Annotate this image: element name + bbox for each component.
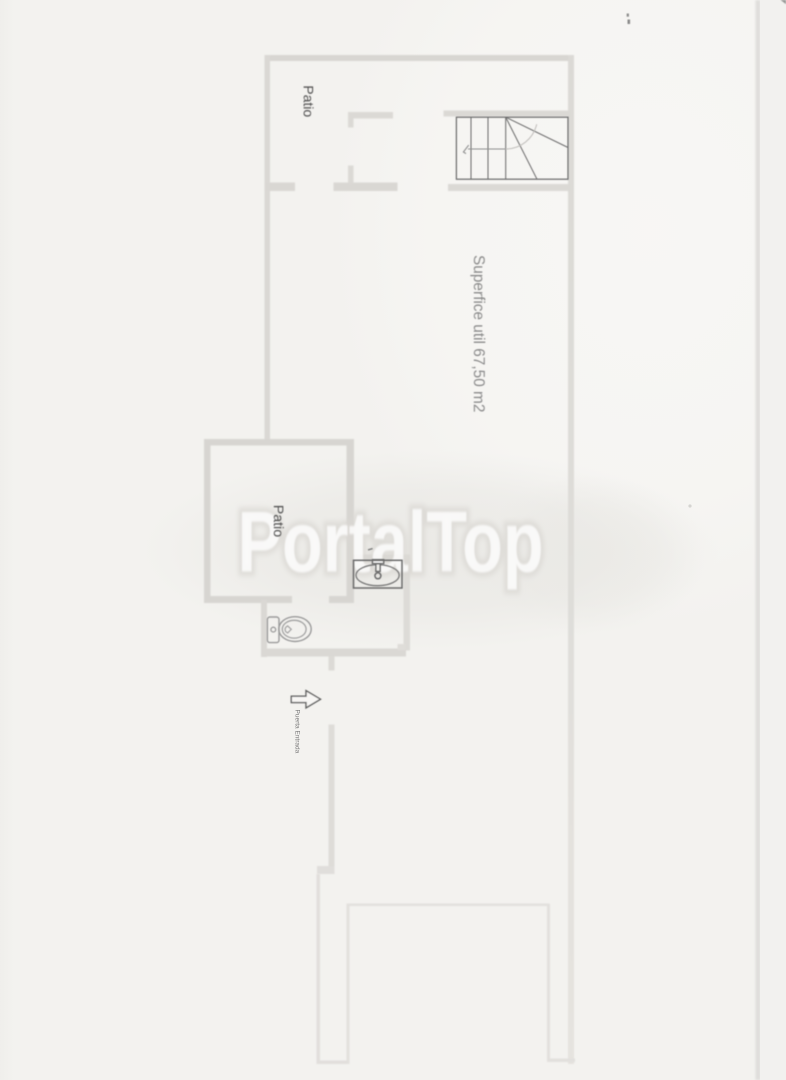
svg-text:Superfice util 67,50 m2: Superfice util 67,50 m2 [470,255,487,412]
svg-text:Puerta Entrada: Puerta Entrada [294,710,301,754]
svg-text:Patio: Patio [270,505,286,537]
svg-text:Patio: Patio [301,85,317,117]
